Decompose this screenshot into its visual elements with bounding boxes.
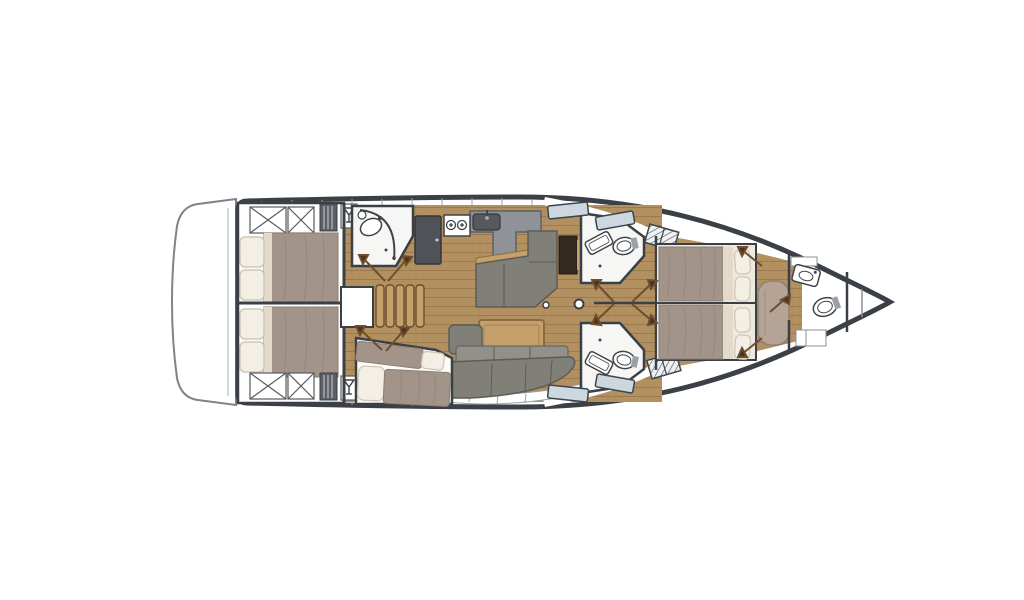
bunk-berth-lower xyxy=(383,369,451,406)
owner-bed-duvet-bottom xyxy=(659,305,733,359)
bench-seat xyxy=(758,281,789,345)
owner-bed-duvet-top xyxy=(659,247,733,301)
chart-table xyxy=(559,236,581,274)
aft-bed-bottom xyxy=(240,307,338,377)
pillow xyxy=(357,366,385,401)
yacht-floor-plan-page xyxy=(0,0,1024,600)
yacht-floor-plan xyxy=(0,0,1024,600)
louver-locker-top xyxy=(320,204,337,231)
storage-locker-x-top xyxy=(250,207,314,233)
louver-locker-bottom xyxy=(320,373,337,400)
pillow xyxy=(240,270,264,300)
companionway xyxy=(341,285,424,327)
pillow xyxy=(421,351,445,371)
pillow xyxy=(240,237,264,267)
aft-cabins xyxy=(238,203,357,403)
engine-access-box xyxy=(341,287,373,327)
swim-platform xyxy=(172,199,236,405)
fore-locker xyxy=(796,330,826,346)
storage-locker-x-bottom xyxy=(250,373,314,399)
keel-bolt xyxy=(543,302,549,308)
faucet-icon xyxy=(378,216,382,220)
pillow xyxy=(240,342,264,372)
pillow xyxy=(240,309,264,339)
stove xyxy=(444,215,470,236)
mast-post xyxy=(575,300,584,309)
companionway-stairs xyxy=(376,285,424,327)
